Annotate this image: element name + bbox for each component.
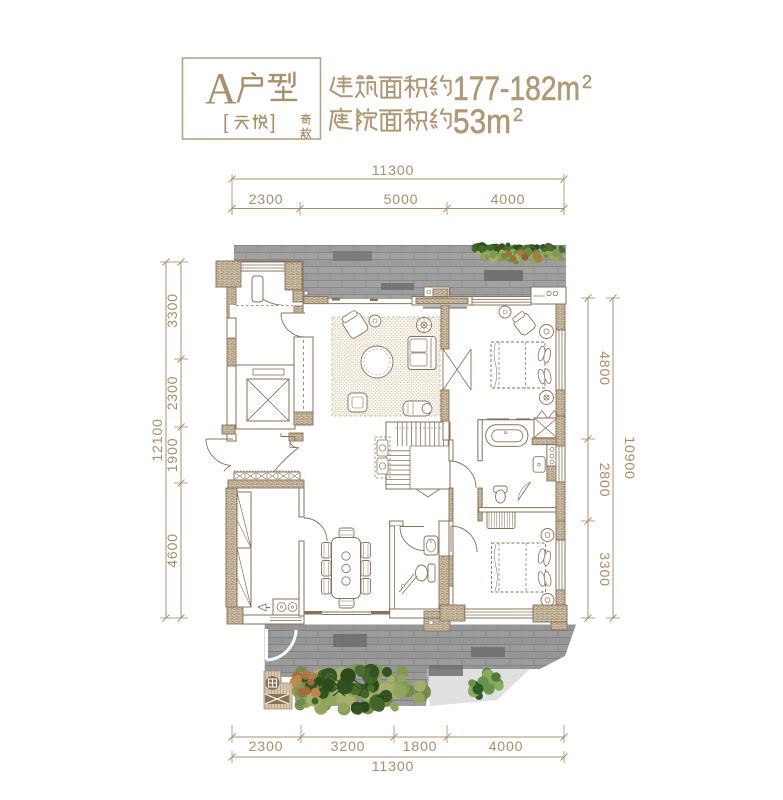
svg-text:4800: 4800 xyxy=(596,351,612,386)
svg-text:3200: 3200 xyxy=(331,739,366,755)
svg-text:4600: 4600 xyxy=(165,533,181,568)
svg-text:2800: 2800 xyxy=(596,463,612,498)
svg-text:4000: 4000 xyxy=(491,192,526,208)
svg-text:5000: 5000 xyxy=(384,192,419,208)
svg-text:11300: 11300 xyxy=(372,759,414,775)
svg-text:53m: 53m xyxy=(453,103,511,141)
svg-text:[: [ xyxy=(223,112,229,134)
svg-text:12100: 12100 xyxy=(150,418,166,461)
svg-text:2300: 2300 xyxy=(165,376,181,411)
svg-text:2: 2 xyxy=(582,72,592,92)
svg-text:2300: 2300 xyxy=(249,192,284,208)
svg-text:1800: 1800 xyxy=(403,739,438,755)
svg-text:A: A xyxy=(205,64,237,113)
svg-text:11300: 11300 xyxy=(372,163,414,179)
svg-text:]: ] xyxy=(270,112,276,134)
svg-text:4000: 4000 xyxy=(489,739,524,755)
svg-text:3300: 3300 xyxy=(165,293,181,328)
svg-text:1900: 1900 xyxy=(165,438,181,473)
svg-text:3300: 3300 xyxy=(596,552,612,587)
svg-text:2: 2 xyxy=(513,105,523,125)
svg-text:2300: 2300 xyxy=(249,739,284,755)
svg-text:10900: 10900 xyxy=(621,436,637,479)
